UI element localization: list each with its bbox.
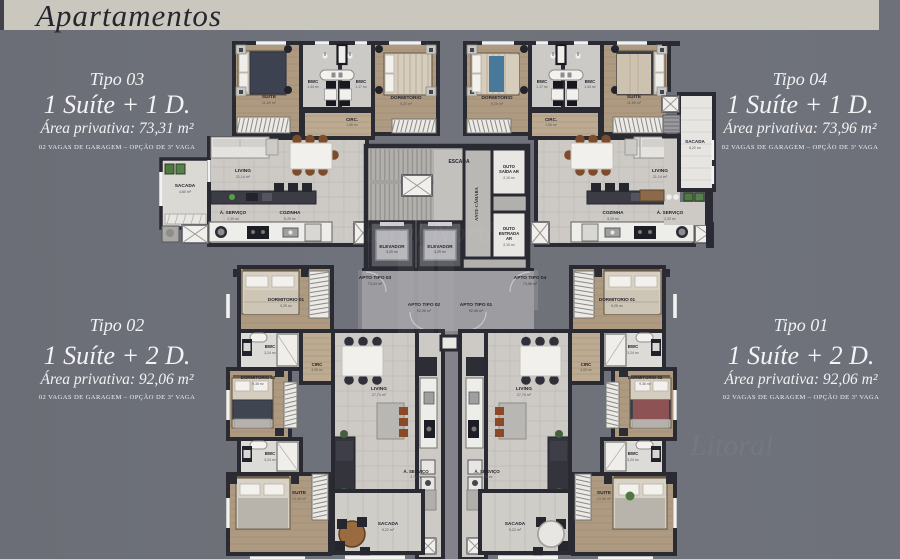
svg-text:BWC: BWC bbox=[265, 451, 276, 456]
svg-text:9,25 m²: 9,25 m² bbox=[280, 304, 293, 308]
svg-text:CIRC.: CIRC. bbox=[545, 117, 557, 122]
svg-text:SACADA: SACADA bbox=[685, 139, 705, 144]
svg-text:3,24 m²: 3,24 m² bbox=[627, 458, 639, 462]
svg-text:2,70 m²: 2,70 m² bbox=[410, 475, 422, 479]
svg-text:4,05 m²: 4,05 m² bbox=[580, 368, 592, 372]
svg-text:02 VAGAS DE GARAGEM – OPÇÃO DE: 02 VAGAS DE GARAGEM – OPÇÃO DE 3ª VAGA bbox=[39, 393, 195, 401]
svg-text:1,56 m²: 1,56 m² bbox=[346, 123, 358, 127]
svg-text:Tipo 02: Tipo 02 bbox=[90, 315, 145, 335]
svg-text:4,80 m²: 4,80 m² bbox=[179, 190, 192, 194]
svg-text:APTO TIPO 01: APTO TIPO 01 bbox=[460, 302, 493, 308]
svg-text:Tipo 04: Tipo 04 bbox=[773, 69, 828, 89]
svg-text:9,22 m²: 9,22 m² bbox=[382, 528, 395, 532]
svg-text:21,14 m²: 21,14 m² bbox=[653, 175, 668, 179]
svg-text:BWC: BWC bbox=[265, 344, 276, 349]
svg-text:3,24 m²: 3,24 m² bbox=[627, 351, 639, 355]
svg-text:1,44 m²: 1,44 m² bbox=[584, 85, 596, 89]
svg-text:DORMITORIO: DORMITORIO bbox=[481, 95, 512, 101]
svg-text:LIVING: LIVING bbox=[371, 386, 387, 392]
svg-text:11,69 m²: 11,69 m² bbox=[262, 101, 277, 105]
svg-text:BWC: BWC bbox=[308, 79, 319, 84]
svg-text:9,22 m²: 9,22 m² bbox=[509, 528, 522, 532]
svg-text:SAÍDA AR: SAÍDA AR bbox=[499, 169, 519, 174]
svg-text:27,74 m²: 27,74 m² bbox=[517, 393, 532, 397]
svg-text:5,20 m²: 5,20 m² bbox=[284, 217, 296, 221]
svg-text:9,25 m²: 9,25 m² bbox=[400, 102, 413, 106]
svg-text:3,29 m²: 3,29 m² bbox=[386, 250, 399, 254]
svg-text:9,36 m²: 9,36 m² bbox=[252, 382, 264, 386]
svg-text:SUITE: SUITE bbox=[597, 490, 612, 496]
svg-text:Tipo 03: Tipo 03 bbox=[90, 69, 145, 89]
svg-text:Litoral North: Litoral North bbox=[339, 216, 501, 249]
svg-text:4,05 m²: 4,05 m² bbox=[311, 368, 323, 372]
svg-text:Apartamentos: Apartamentos bbox=[34, 0, 222, 33]
svg-text:Tipo 01: Tipo 01 bbox=[774, 315, 829, 335]
svg-text:DORMITORIO 02: DORMITORIO 02 bbox=[241, 375, 276, 380]
svg-text:CIRC: CIRC bbox=[581, 362, 593, 367]
svg-text:DORMITORIO 01: DORMITORIO 01 bbox=[268, 297, 305, 302]
svg-text:AR: AR bbox=[506, 236, 512, 241]
svg-text:BWC: BWC bbox=[585, 79, 596, 84]
svg-text:02 VAGAS DE GARAGEM – OPÇÃO DE: 02 VAGAS DE GARAGEM – OPÇÃO DE 3ª VAGA bbox=[39, 143, 195, 151]
svg-text:Área privativa: 73,31 m²: Área privativa: 73,31 m² bbox=[39, 120, 193, 137]
svg-text:2,30 m²: 2,30 m² bbox=[664, 217, 676, 221]
svg-text:2,70 m²: 2,70 m² bbox=[481, 475, 493, 479]
svg-text:92,06 m²: 92,06 m² bbox=[469, 309, 484, 313]
svg-text:DORMITORIO 01: DORMITORIO 01 bbox=[599, 297, 636, 302]
svg-text:02 VAGAS DE GARAGEM – OPÇÃO DE: 02 VAGAS DE GARAGEM – OPÇÃO DE 3ª VAGA bbox=[723, 393, 879, 401]
svg-text:1,17 m²: 1,17 m² bbox=[536, 85, 548, 89]
svg-text:3,24 m²: 3,24 m² bbox=[264, 458, 276, 462]
svg-text:9,36 m²: 9,36 m² bbox=[639, 382, 651, 386]
svg-text:73,24 m²: 73,24 m² bbox=[368, 282, 383, 286]
svg-text:2,10 m²: 2,10 m² bbox=[503, 243, 515, 247]
svg-text:CIRC.: CIRC. bbox=[346, 117, 358, 122]
svg-text:Área privativa: 73,96 m²: Área privativa: 73,96 m² bbox=[722, 120, 876, 137]
svg-text:1 Suíte + 2 D.: 1 Suíte + 2 D. bbox=[728, 341, 875, 370]
svg-text:Litoral: Litoral bbox=[689, 429, 773, 462]
svg-text:Á. SERVIÇO: Á. SERVIÇO bbox=[403, 469, 429, 474]
svg-text:73,96 m²: 73,96 m² bbox=[523, 282, 538, 286]
svg-text:Á. SERVIÇO: Á. SERVIÇO bbox=[220, 209, 247, 215]
svg-text:LIVING: LIVING bbox=[516, 386, 532, 392]
svg-text:1,17 m²: 1,17 m² bbox=[355, 85, 367, 89]
svg-text:DORMITORIO 02: DORMITORIO 02 bbox=[628, 375, 663, 380]
svg-text:SACADA: SACADA bbox=[505, 521, 526, 527]
svg-text:BWC: BWC bbox=[356, 79, 367, 84]
svg-text:ESCADA: ESCADA bbox=[448, 159, 470, 165]
svg-text:Á. SERVIÇO: Á. SERVIÇO bbox=[474, 469, 500, 474]
svg-text:21,14 m²: 21,14 m² bbox=[236, 175, 251, 179]
svg-text:BWC: BWC bbox=[628, 344, 639, 349]
svg-text:2,10 m²: 2,10 m² bbox=[503, 176, 515, 180]
svg-text:BWC: BWC bbox=[537, 79, 548, 84]
svg-text:1 Suíte + 1 D.: 1 Suíte + 1 D. bbox=[727, 90, 874, 119]
svg-text:SUITE: SUITE bbox=[627, 94, 642, 100]
svg-text:02 VAGAS DE GARAGEM – OPÇÃO DE: 02 VAGAS DE GARAGEM – OPÇÃO DE 3ª VAGA bbox=[722, 143, 878, 151]
svg-text:27,74 m²: 27,74 m² bbox=[372, 393, 387, 397]
svg-text:13,46 m²: 13,46 m² bbox=[597, 497, 612, 501]
svg-text:CIRC: CIRC bbox=[312, 362, 324, 367]
svg-text:BWC: BWC bbox=[628, 451, 639, 456]
svg-text:1 Suíte + 2 D.: 1 Suíte + 2 D. bbox=[44, 341, 191, 370]
svg-text:1,56 m²: 1,56 m² bbox=[545, 123, 557, 127]
svg-text:APTO TIPO 04: APTO TIPO 04 bbox=[514, 275, 547, 281]
svg-text:Á. SERVIÇO: Á. SERVIÇO bbox=[657, 209, 684, 215]
svg-text:9,25 m²: 9,25 m² bbox=[611, 304, 624, 308]
svg-text:11,69 m²: 11,69 m² bbox=[627, 101, 642, 105]
svg-text:APTO TIPO 03: APTO TIPO 03 bbox=[359, 275, 392, 281]
svg-text:SACADA: SACADA bbox=[175, 183, 196, 189]
svg-text:13,46 m²: 13,46 m² bbox=[292, 497, 307, 501]
svg-text:Área privativa: 92,06 m²: Área privativa: 92,06 m² bbox=[39, 371, 193, 388]
svg-text:LIVING: LIVING bbox=[652, 168, 668, 174]
svg-text:9,25 m²: 9,25 m² bbox=[491, 102, 504, 106]
svg-text:5,20 m²: 5,20 m² bbox=[607, 217, 619, 221]
svg-text:SACADA: SACADA bbox=[378, 521, 399, 527]
svg-text:LIVING: LIVING bbox=[235, 168, 251, 174]
svg-text:Área privativa: 92,06 m²: Área privativa: 92,06 m² bbox=[723, 371, 877, 388]
svg-text:5,22 m²: 5,22 m² bbox=[689, 146, 702, 150]
svg-text:DORMITORIO: DORMITORIO bbox=[390, 95, 421, 101]
svg-text:SUITE: SUITE bbox=[262, 94, 277, 100]
svg-text:SUITE: SUITE bbox=[292, 490, 307, 496]
svg-text:1,44 m²: 1,44 m² bbox=[307, 85, 319, 89]
svg-text:2,30 m²: 2,30 m² bbox=[227, 217, 239, 221]
svg-text:3,24 m²: 3,24 m² bbox=[264, 351, 276, 355]
svg-text:1 Suíte + 1 D.: 1 Suíte + 1 D. bbox=[44, 90, 191, 119]
svg-text:COZINHA: COZINHA bbox=[603, 210, 625, 215]
svg-text:COZINHA: COZINHA bbox=[280, 210, 302, 215]
